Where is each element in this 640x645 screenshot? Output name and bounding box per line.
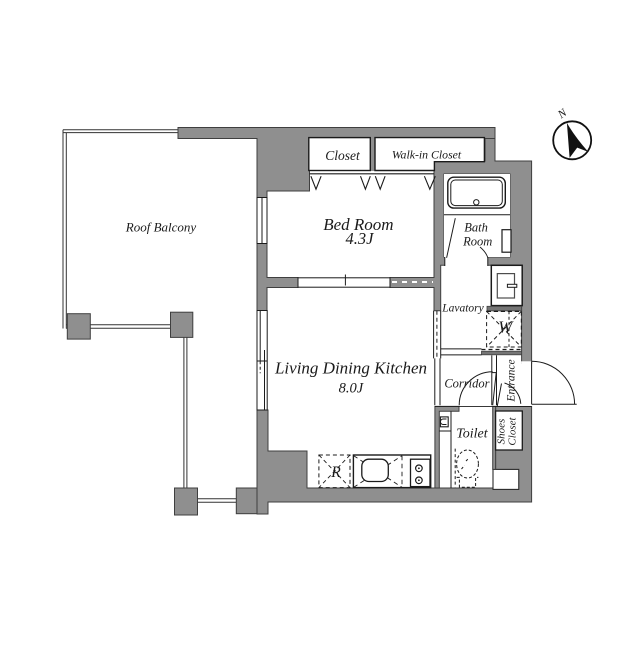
svg-text:Entrance: Entrance [506, 359, 518, 402]
svg-text:R: R [330, 464, 341, 481]
svg-text:W: W [498, 318, 514, 337]
svg-text:Room: Room [462, 235, 492, 249]
svg-text:Living Dining Kitchen: Living Dining Kitchen [274, 359, 427, 378]
svg-text:8.0J: 8.0J [339, 381, 364, 397]
svg-text:Closet: Closet [325, 148, 361, 163]
svg-text:Walk-in Closet: Walk-in Closet [392, 147, 462, 161]
svg-text:Closet: Closet [507, 417, 519, 446]
svg-text:Lavatory: Lavatory [441, 303, 484, 315]
svg-text:4.3J: 4.3J [346, 229, 375, 248]
svg-text:Bath: Bath [464, 221, 488, 235]
svg-text:Toilet: Toilet [456, 427, 488, 442]
svg-text:Roof Balcony: Roof Balcony [125, 220, 197, 235]
